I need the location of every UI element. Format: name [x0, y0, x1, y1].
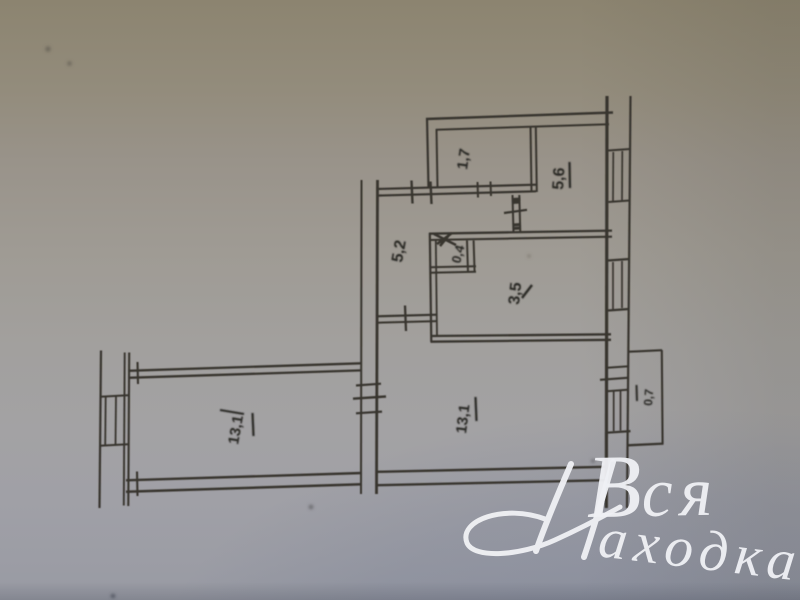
svg-text:13,1: 13,1 — [225, 414, 247, 446]
svg-text:1,7: 1,7 — [454, 148, 474, 171]
svg-text:аходка: аходка — [595, 506, 800, 593]
svg-text:5,2: 5,2 — [389, 239, 410, 264]
svg-text:0,4: 0,4 — [448, 243, 467, 265]
svg-text:3,5: 3,5 — [506, 281, 525, 305]
svg-text:0,7: 0,7 — [641, 388, 656, 406]
svg-text:5,6: 5,6 — [550, 167, 569, 190]
svg-text:13,1: 13,1 — [453, 403, 473, 434]
